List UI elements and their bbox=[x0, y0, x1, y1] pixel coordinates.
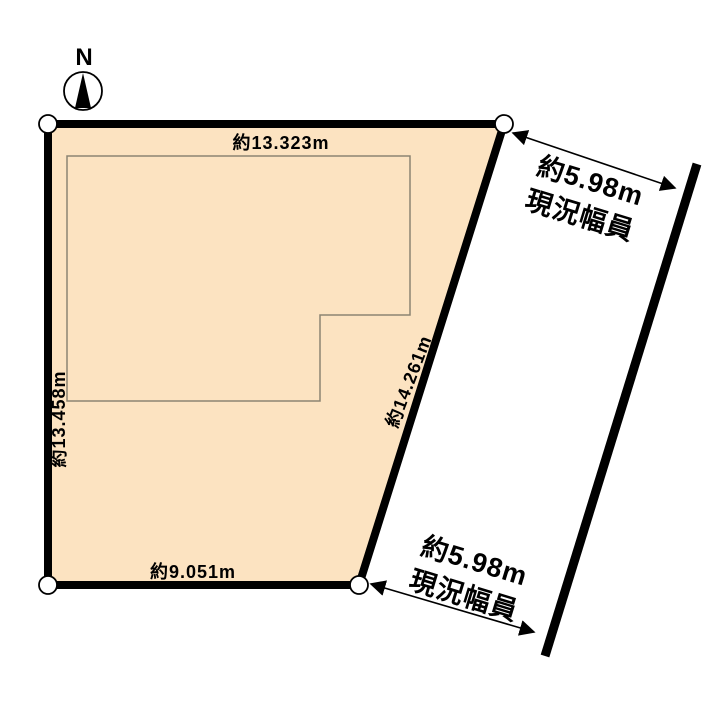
corner-marker-top-right bbox=[495, 115, 513, 133]
site-plan-drawing bbox=[0, 0, 720, 720]
corner-marker-bottom-right bbox=[350, 576, 368, 594]
dimension-bottom: 約9.051m bbox=[150, 558, 236, 584]
corner-marker-bottom-left bbox=[39, 576, 57, 594]
dimension-top: 約13.323m bbox=[232, 129, 329, 155]
parcel-polygon bbox=[48, 124, 504, 585]
north-label: N bbox=[75, 44, 92, 72]
corner-marker-top-left bbox=[39, 115, 57, 133]
site-plan-canvas: N 約13.323m 約13.458m 約14.261m 約9.051m 約5.… bbox=[0, 0, 720, 720]
dimension-left: 約13.458m bbox=[45, 370, 71, 467]
